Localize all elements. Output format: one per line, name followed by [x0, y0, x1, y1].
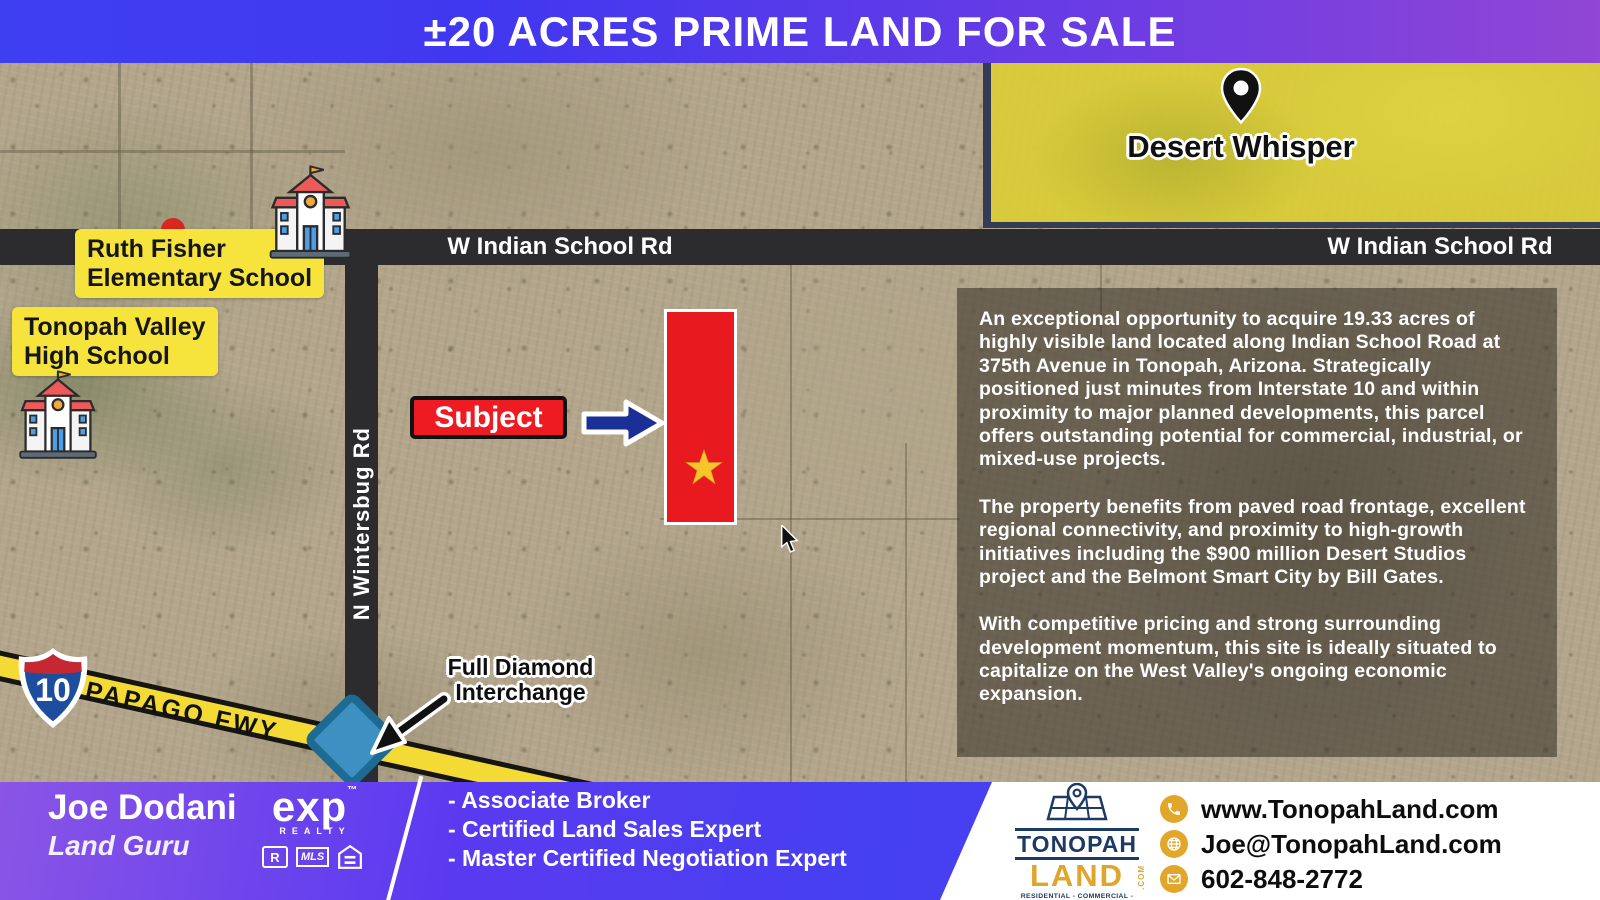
- desert-whisper-area: Desert Whisper: [983, 63, 1600, 228]
- company-name-bottom: LAND: [1030, 858, 1124, 893]
- broker-association-logos: R MLS: [262, 844, 363, 870]
- interstate-10-shield: 10: [16, 646, 90, 730]
- email-text: Joe@TonopahLand.com: [1201, 830, 1502, 858]
- company-com: .COM: [1138, 865, 1146, 890]
- satellite-map: Desert Whisper W Indian School Rd W Indi…: [0, 63, 1600, 782]
- exp-realty-logo: exp™ REALTY: [260, 786, 370, 836]
- credential-item: - Associate Broker: [448, 786, 847, 815]
- map-grid-line: [250, 63, 253, 229]
- banner-title: ±20 ACRES PRIME LAND FOR SALE: [424, 8, 1177, 56]
- map-grid-line: [118, 63, 121, 229]
- credential-item: - Master Certified Negotiation Expert: [448, 844, 847, 873]
- website-text: www.TonopahLand.com: [1201, 795, 1499, 823]
- globe-icon: [1160, 830, 1188, 858]
- phone-row[interactable]: 602-848-2772: [1160, 865, 1502, 893]
- credential-item: - Certified Land Sales Expert: [448, 815, 847, 844]
- website-row[interactable]: www.TonopahLand.com: [1160, 795, 1502, 823]
- agent-title: Land Guru: [48, 830, 190, 862]
- mouse-cursor-icon: [780, 525, 800, 553]
- land-sale-flyer: Desert Whisper W Indian School Rd W Indi…: [0, 0, 1600, 900]
- interstate-10-number: 10: [16, 672, 90, 709]
- desert-whisper-label: Desert Whisper: [1001, 129, 1481, 165]
- map-with-pin-icon: [1046, 783, 1108, 823]
- star-icon: [684, 447, 724, 487]
- phone-icon: [1160, 795, 1188, 823]
- property-description-panel: An exceptional opportunity to acquire 19…: [957, 288, 1557, 757]
- envelope-icon: [1160, 865, 1188, 893]
- subject-arrow-icon: [578, 397, 668, 449]
- map-pin-icon: [1218, 67, 1264, 125]
- company-name-top: TONOPAH: [1015, 828, 1139, 860]
- indian-school-road-label-left: W Indian School Rd: [420, 229, 700, 265]
- phone-text: 602-848-2772: [1201, 865, 1363, 893]
- agent-name: Joe Dodani: [48, 788, 237, 828]
- realtor-icon: R: [262, 846, 288, 868]
- footer-divider: [385, 776, 424, 900]
- school-icon: [13, 368, 103, 463]
- school-icon: [263, 163, 358, 263]
- equal-housing-icon: [337, 844, 363, 870]
- email-row[interactable]: Joe@TonopahLand.com: [1160, 830, 1502, 858]
- tonopah-valley-school-label: Tonopah Valley High School: [12, 307, 218, 376]
- interchange-arrow-icon: [358, 691, 453, 761]
- description-paragraph-2: The property benefits from paved road fr…: [979, 496, 1535, 590]
- indian-school-road-label-right: W Indian School Rd: [1320, 229, 1560, 265]
- tonopah-land-logo: TONOPAH LAND .COM RESIDENTIAL - COMMERCI…: [1002, 783, 1152, 900]
- top-banner: ±20 ACRES PRIME LAND FOR SALE: [0, 0, 1600, 63]
- map-grid-line: [0, 150, 345, 153]
- full-diamond-interchange-label: Full Diamond Interchange: [428, 655, 613, 706]
- contact-list: www.TonopahLand.com Joe@TonopahLand.com: [1160, 795, 1502, 900]
- map-grid-line: [790, 265, 792, 782]
- description-paragraph-1: An exceptional opportunity to acquire 19…: [979, 308, 1535, 472]
- company-tagline: RESIDENTIAL - COMMERCIAL - INDUSTRIAL - …: [1002, 893, 1152, 900]
- wintersburg-road-label: N Wintersbug Rd: [349, 427, 375, 620]
- footer-bar: Joe Dodani Land Guru exp™ REALTY R MLS -…: [0, 782, 1600, 900]
- mls-logo: MLS: [296, 847, 329, 867]
- credentials-list: - Associate Broker - Certified Land Sale…: [448, 786, 847, 873]
- description-paragraph-3: With competitive pricing and strong surr…: [979, 613, 1535, 707]
- subject-parcel-highlight: [664, 309, 737, 525]
- papago-freeway-label: PAPAGO FWY: [83, 675, 282, 747]
- map-grid-line: [905, 443, 907, 782]
- subject-label: Subject: [410, 396, 567, 439]
